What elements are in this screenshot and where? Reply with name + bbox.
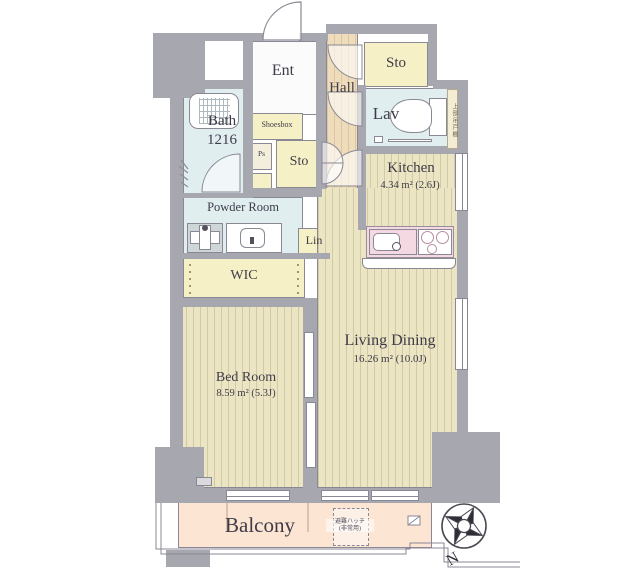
label-kitchen-area: 4.34 m² (2.6J) — [362, 180, 458, 192]
lav-counter-line — [388, 139, 432, 142]
label-powder-room: Powder Room — [186, 200, 300, 214]
stove-burner-2 — [436, 231, 449, 244]
entrance-door-arc — [263, 2, 301, 40]
label-living-dining: Living Dining — [330, 332, 450, 350]
label-living-dining-area: 16.26 m² (10.0J) — [330, 353, 450, 366]
kitchen-counter-ledge — [362, 258, 456, 269]
wall-right-mid — [457, 211, 468, 298]
compass-hub — [455, 517, 473, 535]
living-balcony-window-1 — [321, 490, 369, 501]
label-storage-top: Sto — [368, 55, 424, 72]
stove-burner-1 — [421, 231, 434, 244]
wall-top-hall — [326, 24, 437, 34]
wall-top-ent-left — [203, 33, 263, 41]
wall-powder-wic — [180, 253, 330, 259]
upper-cabinet-note: 上部吊戸棚 — [448, 92, 457, 148]
label-entrance: Ent — [256, 62, 310, 80]
wall-bath-bottom — [180, 193, 253, 198]
bedroom-balcony-window — [226, 490, 290, 501]
wall-right-lower — [457, 370, 468, 432]
room-hall — [326, 33, 358, 189]
bedroom-sliding-door-panel-2 — [306, 402, 316, 468]
compass-north-label: N — [444, 549, 463, 569]
wall-right-upper — [457, 85, 468, 153]
compass-star — [436, 498, 493, 555]
washer-faucet-dot — [202, 225, 208, 231]
label-kitchen: Kitchen — [368, 160, 454, 177]
label-storage-mid: Sto — [279, 154, 319, 170]
label-lavatory: Lav — [364, 104, 408, 124]
evacuation-hatch-note: 避難ハッチ (非常用) — [326, 519, 374, 532]
label-wic: WIC — [209, 268, 279, 284]
living-side-window — [455, 298, 468, 370]
living-balcony-window-2 — [371, 490, 419, 501]
railing-bottom-2 — [184, 548, 520, 567]
wall-bottom-tab — [166, 550, 210, 567]
compass-circle — [442, 504, 486, 548]
label-linen: Lin — [300, 234, 328, 248]
wall-sto-right — [428, 24, 437, 86]
wall-closet-bottom — [249, 188, 322, 197]
wall-wic-bedroom — [178, 298, 317, 307]
living-window2-mullion — [372, 496, 418, 497]
wic-hanger-left — [189, 262, 191, 294]
label-bedroom-area: 8.59 m² (5.3J) — [186, 388, 306, 400]
vanity-faucet-dot — [250, 237, 254, 244]
compass-rose: N — [436, 498, 493, 569]
hatch-note-line1: 避難ハッチ — [335, 519, 365, 525]
label-pipe-space: Ps — [253, 150, 270, 159]
wall-left — [170, 95, 183, 457]
floor-plan: 上部吊戸棚 避難ハッチ (非常用) — [0, 0, 640, 569]
label-hall: Hall — [318, 80, 366, 97]
living-window1-mullion — [322, 496, 368, 497]
living-side-window-mullion — [462, 299, 463, 369]
kitchen-window-mullion — [462, 154, 463, 210]
label-bedroom: Bed Room — [186, 370, 306, 386]
label-bath: Bath — [196, 113, 248, 130]
label-bath-size: 1216 — [196, 132, 248, 149]
stove-burner-3 — [427, 244, 437, 254]
kitchen-faucet — [392, 242, 401, 251]
wall-lav-bottom — [362, 146, 458, 154]
label-balcony: Balcony — [202, 513, 318, 537]
wall-bath-top — [178, 80, 248, 89]
label-shoesbox: Shoesbox — [252, 120, 302, 129]
bedroom-window-mullion — [227, 496, 289, 497]
wic-hanger-right — [297, 262, 299, 294]
lav-drain-box — [374, 136, 383, 143]
hatch-note-line2: (非常用) — [339, 526, 361, 532]
meter-box — [196, 477, 212, 486]
